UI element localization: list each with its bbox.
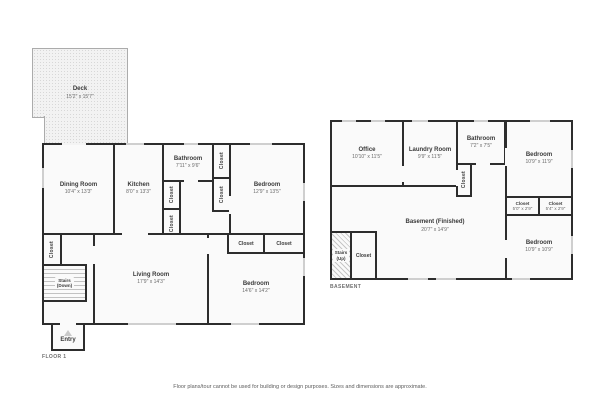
window-mark [42,168,44,188]
room-dims: 15'2" x 15'7" [50,94,110,100]
door-opening [229,196,231,214]
closet-f1-left: Closet [42,233,62,266]
window-mark [474,120,488,122]
window-mark [250,143,272,145]
closet-label: Closet [461,171,467,188]
room-dims: 8'0" x 13'3" [126,190,151,196]
window-mark [512,278,530,280]
window-mark [571,150,573,168]
room-name: Office [352,147,382,154]
window-mark [126,143,144,145]
room-dims: 7'2" x 7'5" [467,144,495,150]
closet-label: Closet [169,215,175,232]
room-dims: 12'9" x 13'5" [253,190,280,196]
stairs-up: Stairs (Up) [330,231,352,280]
door-opening [93,246,95,264]
room-name: Bedroom [253,182,280,189]
room-name: Bedroom [242,281,269,288]
room-dims: 17'9" x 14'3" [133,280,169,286]
door-opening [207,238,209,254]
room-dims: 14'6" x 14'2" [242,289,269,295]
room-bathroom-f1: Bathroom 7'11" x 9'6" [162,143,214,182]
closet-bsmt-mid: Closet [456,163,472,197]
room-dims: 10'9" x 10'9" [525,248,552,254]
room-dims: 10'9" x 11'9" [525,160,552,166]
entry-arrow-icon [64,330,72,336]
disclaimer-text: Floor plans/tour cannot be used for buil… [0,384,600,390]
deck-seam [45,113,127,119]
closet-label: Closet [238,241,253,247]
closet-bsmt-row-right: Closet 5'4" x 2'9" [538,196,573,216]
room-name: Dining Room [60,182,97,189]
window-mark [342,120,356,122]
room-name: Bedroom [525,240,552,247]
room-deck-label: Deck 15'2" x 15'7" [50,86,110,100]
closet-label: Closet [169,186,175,203]
door-opening [122,233,148,235]
room-basement-main-label: Basement (Finished) 20'7" x 14'9" [385,219,485,233]
room-bathroom-bsmt: Bathroom 7'2" x 7'5" [456,120,506,165]
room-living: Living Room 17'9" x 14'3" [93,233,209,325]
basement-caption: BASEMENT [330,284,361,290]
closet-dims: 5'0" x 2'9" [513,206,533,211]
window-mark [303,258,305,276]
room-name: Deck [50,86,110,93]
window-mark [530,120,550,122]
room-bedroom-bsmt-top: Bedroom 10'9" x 11'9" [505,120,573,198]
entry-vestibule: Entry [51,323,85,351]
stairs-label: Stairs [335,250,348,255]
door-opening [60,323,76,325]
door-opening [402,166,404,182]
closet-label: Closet [219,152,225,169]
room-office: Office 10'10" x 11'5" [330,120,404,187]
room-laundry: Laundry Room 9'9" x 11'5" [402,120,458,187]
room-name: Laundry Room [409,147,451,154]
window-mark [184,143,198,145]
closet-bsmt-stairs: Closet [350,231,377,280]
closet-label: Closet [49,241,55,258]
window-mark [412,120,428,122]
room-dining: Dining Room 10'4" x 13'3" [42,143,115,235]
door-opening [62,143,86,145]
deck-area-lower [44,116,128,145]
closet-f1-row-right: Closet [263,233,305,254]
floor1-caption: FLOOR 1 [42,354,66,360]
window-mark [303,183,305,201]
closet-f1-row-left: Closet [227,233,265,254]
window-mark [571,236,573,254]
stairs-sublabel: (Up) [335,256,348,261]
room-bedroom-bsmt-bottom: Bedroom 10'9" x 10'9" [505,214,573,280]
door-opening [505,240,507,258]
window-mark [408,278,428,280]
closet-label: Closet [356,253,371,259]
floorplan-canvas: Deck 15'2" x 15'7" Dining Room 10'4" x 1… [0,0,600,400]
deck-area-upper [32,48,128,118]
room-dims: 10'4" x 13'3" [60,190,97,196]
stairs-sublabel: (Down) [57,283,72,288]
closet-bsmt-row-left: Closet 5'0" x 2'9" [505,196,540,216]
door-opening [184,180,198,182]
closet-dims: 5'4" x 2'9" [546,206,566,211]
room-kitchen: Kitchen 8'0" x 13'3" [113,143,164,235]
room-dims: 20'7" x 14'9" [385,227,485,233]
window-mark [128,323,176,325]
closet-label: Closet [219,186,225,203]
door-opening [476,163,490,165]
room-dims: 7'11" x 9'6" [174,164,202,170]
room-dims: 9'9" x 11'5" [409,155,451,161]
room-bedroom-f1-top: Bedroom 12'9" x 13'5" [229,143,305,235]
closet-f1-a: Closet [162,180,181,210]
stairs-down: Stairs (Down) [42,264,87,302]
room-name: Kitchen [126,182,151,189]
room-name: Entry [60,337,75,344]
closet-label: Closet [276,241,291,247]
window-mark [436,278,456,280]
window-mark [371,120,385,122]
door-opening [456,170,458,186]
room-name: Bathroom [467,136,495,143]
window-mark [231,323,259,325]
room-name: Living Room [133,272,169,279]
room-name: Bedroom [525,152,552,159]
room-name: Basement (Finished) [385,219,485,226]
room-name: Bathroom [174,156,202,163]
door-opening [505,148,507,166]
room-dims: 10'10" x 11'5" [352,155,382,161]
